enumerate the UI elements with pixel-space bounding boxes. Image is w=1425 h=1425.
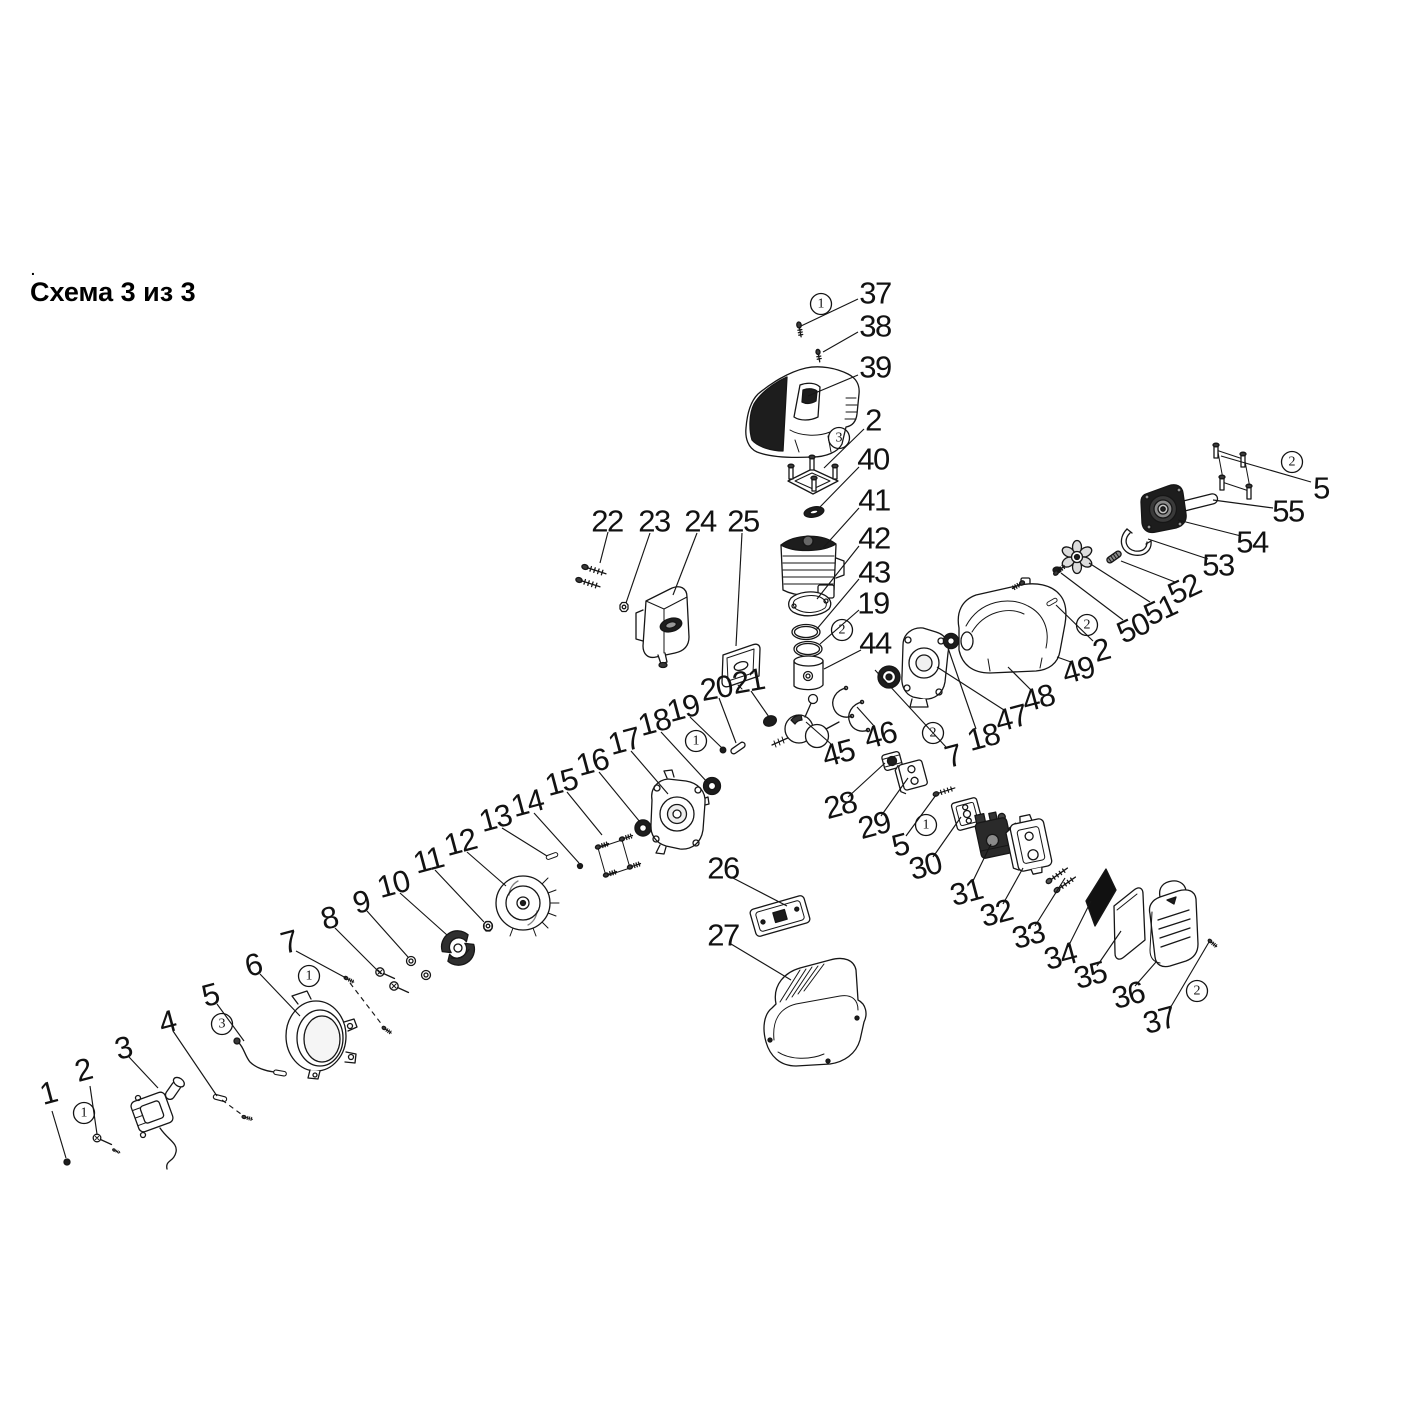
leader-line xyxy=(1221,456,1311,482)
leader-line xyxy=(467,852,506,886)
leader-line xyxy=(367,911,408,957)
part-clutch-shoes xyxy=(437,926,479,969)
part-fan-wheel xyxy=(1060,541,1093,574)
part-number-5: 5 xyxy=(198,976,223,1014)
part-crankcase-left xyxy=(651,770,709,854)
part-ignition-coil xyxy=(130,1075,186,1169)
part-washers-9 xyxy=(407,957,431,980)
leader-line xyxy=(848,763,885,797)
part-base-gasket xyxy=(789,592,831,616)
part-muffler xyxy=(636,587,689,668)
leader-line xyxy=(631,751,668,794)
exploded-diagram: 3738392404142431944222324252021191817161… xyxy=(0,0,1425,1425)
part-pin-52 xyxy=(1106,550,1123,564)
part-number-24: 24 xyxy=(684,504,717,539)
part-number-26: 26 xyxy=(707,851,739,886)
part-bottom-cover xyxy=(764,958,866,1066)
part-number-45: 45 xyxy=(818,732,858,774)
part-number-labels: 3738392404142431944222324252021191817161… xyxy=(36,276,1329,1112)
part-clutch-drum xyxy=(1141,485,1219,533)
part-number-11: 11 xyxy=(409,839,446,880)
part-number-35: 35 xyxy=(1070,954,1110,996)
part-number-28: 28 xyxy=(820,784,860,826)
part-number-14: 14 xyxy=(507,782,548,824)
leader-line xyxy=(736,533,742,646)
part-number-21: 21 xyxy=(729,661,766,701)
parts-artwork xyxy=(64,322,1252,1169)
part-bracket-15 xyxy=(595,834,641,878)
part-nut-11 xyxy=(484,922,493,932)
part-foam-element xyxy=(1086,869,1116,926)
leader-line xyxy=(1178,520,1241,536)
part-number-43: 43 xyxy=(858,555,890,590)
part-number-29: 29 xyxy=(854,804,894,846)
callout-number-1: 1 xyxy=(81,1106,88,1121)
callout-number-3: 3 xyxy=(219,1017,226,1032)
part-number-19: 19 xyxy=(857,586,889,621)
leader-line xyxy=(1213,500,1273,508)
part-piston-rings xyxy=(792,625,822,657)
part-number-2: 2 xyxy=(1089,631,1114,669)
part-number-9: 9 xyxy=(349,883,374,921)
part-clutch-spring xyxy=(1121,529,1151,555)
callout-number-2: 2 xyxy=(1194,984,1201,999)
part-filter-element xyxy=(1114,888,1145,959)
part-number-46: 46 xyxy=(860,714,900,756)
part-crankcase-right xyxy=(902,628,949,707)
leader-line xyxy=(400,893,447,935)
part-dot-19 xyxy=(720,747,726,753)
leader-line xyxy=(824,650,861,669)
callout-number-1: 1 xyxy=(306,969,313,984)
part-oil-seal-16 xyxy=(635,820,651,836)
part-number-39: 39 xyxy=(859,350,891,385)
part-number-22: 22 xyxy=(591,504,623,539)
part-number-7: 7 xyxy=(941,737,966,775)
part-number-37: 37 xyxy=(859,276,891,311)
part-oval-seal xyxy=(803,505,825,519)
part-fan-cover xyxy=(286,991,357,1079)
part-fuel-tank xyxy=(958,567,1066,673)
part-number-41: 41 xyxy=(858,483,890,518)
schematic-page: . Схема 3 из 3 xyxy=(0,0,1425,1425)
part-number-40: 40 xyxy=(857,442,890,477)
part-number-42: 42 xyxy=(858,521,890,556)
part-number-2: 2 xyxy=(71,1051,96,1089)
part-mount-bracket-right xyxy=(1213,443,1252,499)
part-number-54: 54 xyxy=(1236,525,1269,560)
part-number-44: 44 xyxy=(859,626,892,661)
part-piston xyxy=(794,656,823,690)
part-number-6: 6 xyxy=(241,946,266,984)
part-oil-seal-right xyxy=(943,633,958,648)
part-number-3: 3 xyxy=(111,1029,136,1067)
leader-line xyxy=(296,951,346,978)
part-number-16: 16 xyxy=(572,741,612,783)
part-screw-7b xyxy=(381,1025,392,1034)
leader-line xyxy=(731,877,787,906)
part-number-38: 38 xyxy=(859,309,891,344)
leader-line xyxy=(1148,539,1208,559)
part-number-15: 15 xyxy=(541,761,581,803)
part-number-8: 8 xyxy=(317,899,342,937)
part-number-1: 1 xyxy=(36,1074,61,1112)
part-number-37: 37 xyxy=(1139,999,1179,1041)
leader-line xyxy=(731,944,791,980)
leader-line xyxy=(350,983,383,1026)
part-number-23: 23 xyxy=(638,504,670,539)
part-bolt-2 xyxy=(93,1134,120,1154)
leader-line xyxy=(567,792,602,835)
part-bolts-8 xyxy=(376,968,409,993)
part-number-5: 5 xyxy=(1313,471,1329,506)
callout-number-1: 1 xyxy=(923,818,930,833)
part-pin-20 xyxy=(730,741,746,755)
part-number-25: 25 xyxy=(727,504,759,539)
part-grommet-21 xyxy=(762,714,778,728)
callout-number-1: 1 xyxy=(693,734,700,749)
part-filter-screws xyxy=(1045,866,1077,893)
leader-line xyxy=(626,533,650,603)
part-number-2: 2 xyxy=(865,403,881,438)
part-nut-23 xyxy=(620,603,628,612)
part-number-12: 12 xyxy=(440,821,480,863)
part-throttle-rod-5 xyxy=(234,1038,287,1076)
callout-number-2: 2 xyxy=(839,623,846,638)
part-dot-1 xyxy=(64,1159,70,1165)
leader-line xyxy=(823,508,859,548)
callout-number-3: 3 xyxy=(836,431,843,446)
part-number-49: 49 xyxy=(1058,649,1098,691)
part-filter-base xyxy=(1003,812,1053,878)
leader-line xyxy=(673,533,697,595)
part-number-4: 4 xyxy=(155,1003,180,1041)
leader-lines xyxy=(52,299,1311,1158)
part-dot-14 xyxy=(578,864,583,869)
callout-number-2: 2 xyxy=(1289,455,1296,470)
part-number-7: 7 xyxy=(277,923,302,961)
part-screw-37 xyxy=(796,322,803,338)
leader-line xyxy=(52,1111,66,1158)
callout-number-2: 2 xyxy=(1084,618,1091,633)
leader-line xyxy=(599,772,640,822)
part-number-30: 30 xyxy=(905,845,946,887)
part-number-10: 10 xyxy=(373,863,414,905)
part-cylinder xyxy=(781,536,844,598)
part-number-53: 53 xyxy=(1202,548,1234,583)
part-screw-38 xyxy=(816,349,822,362)
leader-line xyxy=(1061,573,1123,620)
callout-number-1: 1 xyxy=(818,297,825,312)
part-filter-cover xyxy=(1149,881,1198,967)
part-pin-13 xyxy=(546,852,559,860)
part-carb-gasket-26 xyxy=(749,895,811,937)
callout-number-2: 2 xyxy=(930,726,937,741)
part-number-55: 55 xyxy=(1272,494,1304,529)
leader-line xyxy=(435,870,484,922)
part-muffler-bolts xyxy=(575,564,606,589)
part-number-27: 27 xyxy=(707,918,739,953)
leader-line xyxy=(222,1100,241,1114)
leader-line xyxy=(823,332,858,352)
part-screw-7 xyxy=(343,976,354,984)
leader-line xyxy=(335,928,381,974)
leader-line xyxy=(801,299,858,326)
